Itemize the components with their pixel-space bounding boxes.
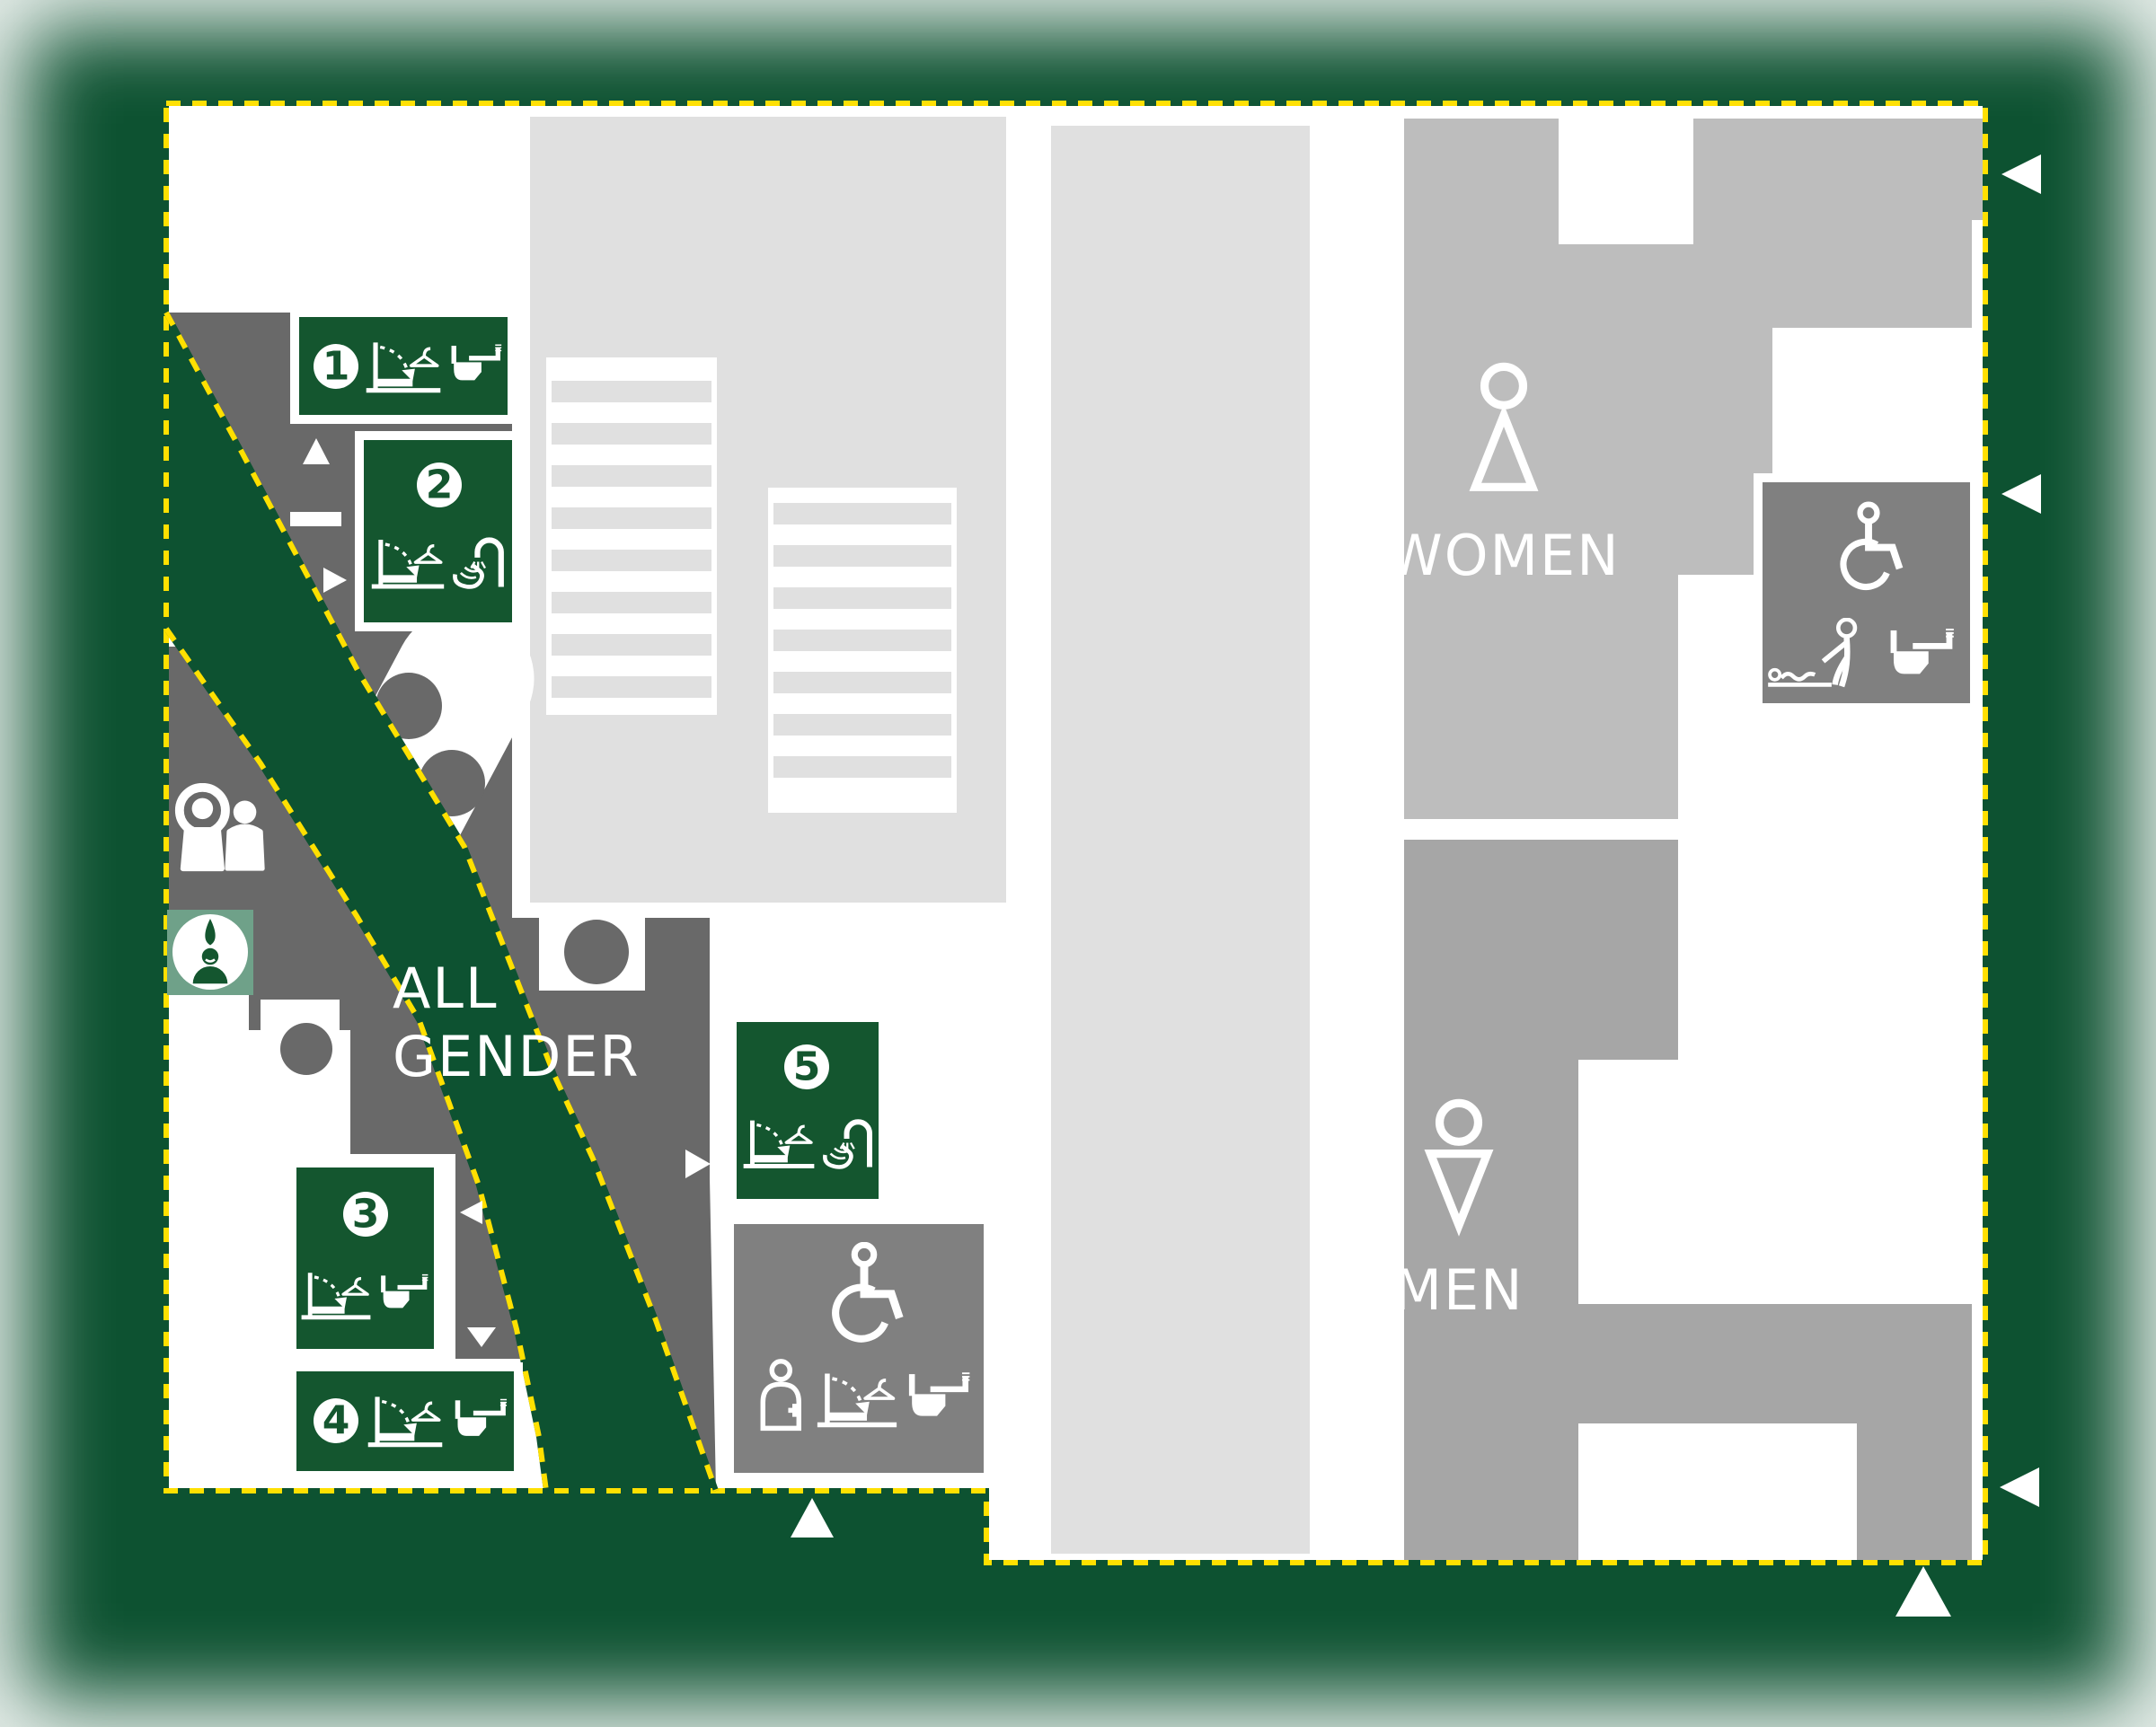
women-label: WOMEN xyxy=(1387,523,1620,588)
station-1-number: 1 xyxy=(323,344,350,390)
floorplan-svg: 1 2 3 4 5 ALL GENDER WOMEN xyxy=(0,0,2156,1727)
ablution-station xyxy=(167,910,253,995)
station-5-number: 5 xyxy=(793,1044,821,1090)
fixture-circle xyxy=(564,920,629,984)
all-gender-label-line1: ALL xyxy=(393,956,499,1021)
accessible-room-center xyxy=(729,1220,988,1477)
staircase xyxy=(530,117,1006,903)
station-3-badge: 3 xyxy=(292,1163,438,1353)
door-opening xyxy=(290,512,341,526)
floorplan-map: 1 2 3 4 5 ALL GENDER WOMEN xyxy=(0,0,2156,1727)
fixture-pad xyxy=(539,916,645,991)
central-corridor xyxy=(1051,126,1310,1554)
station-2-number: 2 xyxy=(426,463,454,508)
station-2-badge: 2 xyxy=(359,436,517,627)
fixture-circle xyxy=(280,1023,332,1075)
station-3-number: 3 xyxy=(352,1192,380,1238)
station-1-badge: 1 xyxy=(295,313,512,419)
station-4-number: 4 xyxy=(323,1398,350,1444)
all-gender-label-line2: GENDER xyxy=(393,1024,641,1089)
station-5-badge: 5 xyxy=(732,1018,883,1203)
accessible-room-right xyxy=(1758,478,1975,708)
fixture-pad xyxy=(261,1000,340,1087)
men-label: MEN xyxy=(1393,1257,1524,1323)
station-4-badge: 4 xyxy=(292,1367,518,1476)
